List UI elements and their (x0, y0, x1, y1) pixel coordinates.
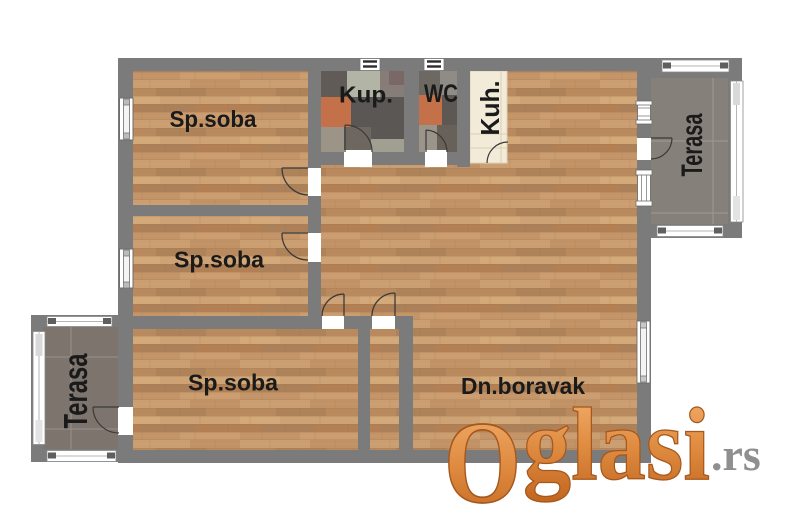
svg-text:WC: WC (424, 80, 458, 108)
svg-text:Sp.soba: Sp.soba (174, 247, 264, 273)
svg-text:Kup.: Kup. (339, 82, 393, 108)
svg-text:glasi: glasi (523, 387, 710, 502)
svg-text:.rs: .rs (711, 429, 761, 480)
svg-text:Sp.soba: Sp.soba (188, 370, 278, 396)
svg-text:Sp.soba: Sp.soba (170, 106, 257, 132)
svg-text:O: O (444, 397, 521, 521)
svg-text:Terasa: Terasa (676, 113, 709, 176)
svg-text:Kuh.: Kuh. (475, 81, 505, 136)
svg-text:Terasa: Terasa (57, 353, 94, 428)
